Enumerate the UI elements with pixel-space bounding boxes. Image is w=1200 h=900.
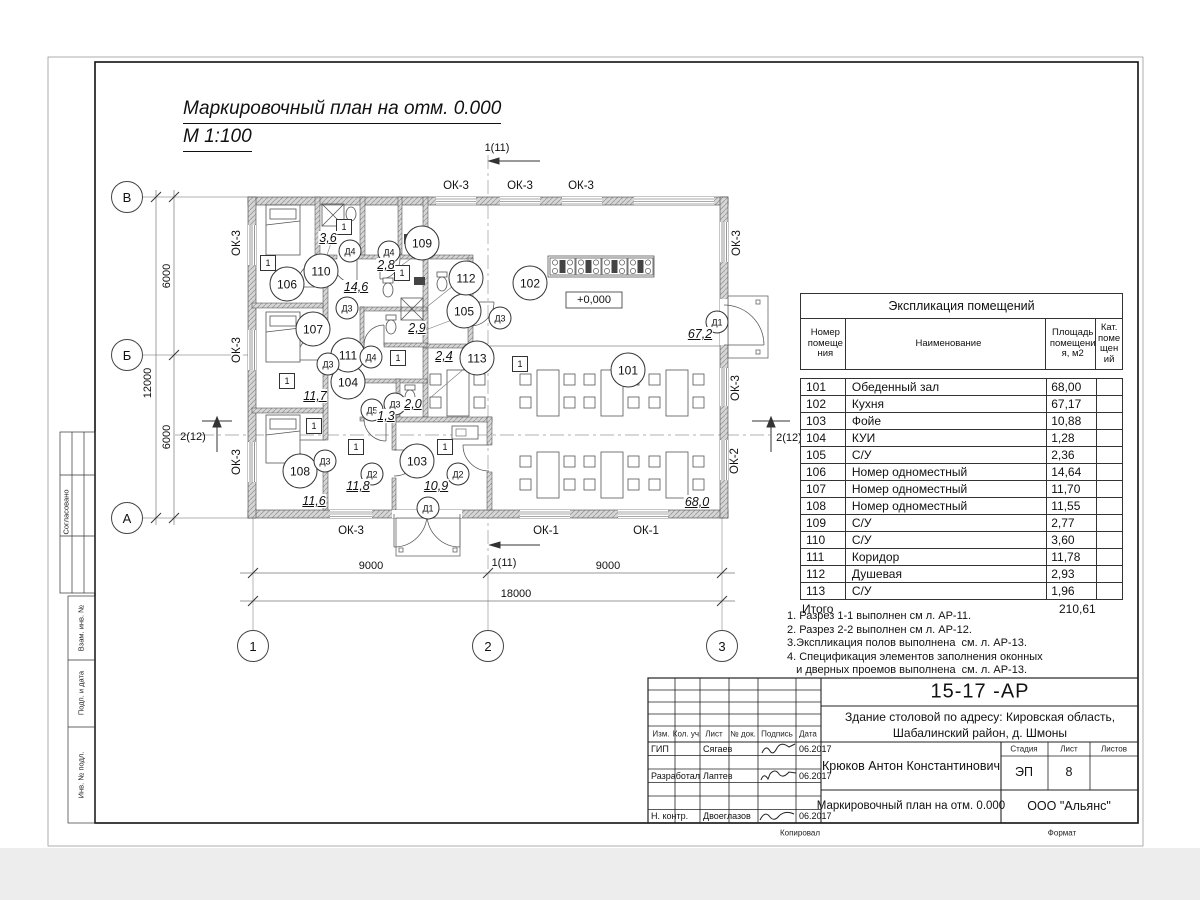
stamp-approve-label: Согласовано <box>62 489 71 534</box>
stage-label: Стадия <box>1010 745 1037 754</box>
stamp-inv-label: Инв. № подл. <box>77 752 86 799</box>
col-header-num: Номер помеще ния <box>801 319 846 369</box>
wall-type-marker: 1 <box>279 373 295 389</box>
room-cat <box>1097 549 1123 565</box>
person-date: 06.2017 <box>799 811 832 821</box>
table-row: 104КУИ1,28 <box>801 430 1123 447</box>
table-row: 101Обеденный зал68,00 <box>801 379 1123 396</box>
section-mark-label: 1(11) <box>485 142 510 154</box>
room-number: 111 <box>801 549 846 565</box>
titleblock-col-header: Лист <box>705 730 722 739</box>
room-name: С/У <box>846 447 1047 463</box>
room-number: 110 <box>801 532 846 548</box>
room-cat <box>1097 413 1123 429</box>
explication-rows: 101Обеденный зал68,00102Кухня67,17103Фой… <box>800 378 1123 600</box>
note-line: 2. Разрез 2-2 выполнен см л. АР-12. <box>787 624 1043 638</box>
room-name: Номер одноместный <box>846 481 1047 497</box>
col-header-name: Наименование <box>846 319 1047 369</box>
company-name: ООО "Альянс" <box>1027 799 1111 813</box>
room-number: 105 <box>801 447 846 463</box>
table-row: 103Фойе10,88 <box>801 413 1123 430</box>
room-marker-101: 101 <box>611 353 646 388</box>
room-name: Кухня <box>846 396 1047 412</box>
room-number: 102 <box>801 396 846 412</box>
note-line: 1. Разрез 1-1 выполнен см л. АР-11. <box>787 610 1043 624</box>
window-label-ОК-3: ОК-3 <box>231 447 243 477</box>
room-number: 104 <box>801 430 846 446</box>
project-line1: Здание столовой по адресу: Кировская обл… <box>845 710 1115 724</box>
window-label-ОК-3: ОК-3 <box>566 180 596 192</box>
window-label-ОК-2: ОК-2 <box>729 446 741 476</box>
wall-type-marker: 1 <box>260 255 276 271</box>
window-label-ОК-3: ОК-3 <box>441 180 471 192</box>
room-area-label: 67,2 <box>687 327 713 341</box>
explication-header: Номер помеще ния Наименование Площадь по… <box>800 319 1123 370</box>
doc-code: 15-17 -АР <box>930 681 1029 704</box>
room-area: 14,64 <box>1047 464 1097 480</box>
room-name: Коридор <box>846 549 1047 565</box>
door-marker-Д3: Д3 <box>317 353 340 376</box>
sheets-label: Листов <box>1101 745 1127 754</box>
room-area-label: 11,7 <box>302 389 327 403</box>
window-label-ОК-3: ОК-3 <box>730 373 742 403</box>
room-area: 67,17 <box>1047 396 1097 412</box>
room-marker-107: 107 <box>296 312 331 347</box>
window-label-ОК-3: ОК-3 <box>505 180 535 192</box>
room-area: 10,88 <box>1047 413 1097 429</box>
room-marker-113: 113 <box>460 341 495 376</box>
door-marker-Д2: Д2 <box>447 463 470 486</box>
axis-bubble-Б: Б <box>111 339 143 371</box>
room-cat <box>1097 379 1123 395</box>
bed-icon <box>266 205 300 463</box>
person-role: Н. контр. <box>651 811 688 821</box>
room-marker-112: 112 <box>449 261 484 296</box>
room-name: Обеденный зал <box>846 379 1047 395</box>
room-area: 11,78 <box>1047 549 1097 565</box>
room-cat <box>1097 396 1123 412</box>
door-marker-Д4: Д4 <box>360 346 383 369</box>
wall-type-marker: 1 <box>437 439 453 455</box>
window-label-ОК-3: ОК-3 <box>231 335 243 365</box>
room-area: 3,60 <box>1047 532 1097 548</box>
person-date: 06.2017 <box>799 744 832 754</box>
room-number: 107 <box>801 481 846 497</box>
dimension-label: 12000 <box>142 368 154 399</box>
room-cat <box>1097 498 1123 514</box>
door-marker-Д4: Д4 <box>339 240 362 263</box>
project-line2: Шабалинский район, д. Шмоны <box>893 726 1067 740</box>
title-line2: М 1:100 <box>183 124 252 152</box>
room-marker-103: 103 <box>400 444 435 479</box>
door-marker-Д3: Д3 <box>489 307 512 330</box>
axis-bubble-2: 2 <box>472 630 504 662</box>
notes-list: 1. Разрез 1-1 выполнен см л. АР-11.2. Ра… <box>787 610 1043 678</box>
door-marker-Д3: Д3 <box>314 450 337 473</box>
room-area-label: 1,3 <box>376 409 395 423</box>
room-area: 1,96 <box>1047 583 1097 599</box>
titleblock-col-header: Дата <box>799 730 817 739</box>
section-mark-label: 1(11) <box>492 557 517 569</box>
title-line1: Маркировочный план на отм. 0.000 <box>183 96 501 124</box>
room-name: С/У <box>846 532 1047 548</box>
room-number: 106 <box>801 464 846 480</box>
room-cat <box>1097 532 1123 548</box>
table-row: 107Номер одноместный11,70 <box>801 481 1123 498</box>
room-cat <box>1097 430 1123 446</box>
room-area-label: 2,8 <box>376 258 395 272</box>
room-area: 11,70 <box>1047 481 1097 497</box>
drawing-sheet: Маркировочный план на отм. 0.000 М 1:100… <box>0 0 1200 900</box>
room-area: 2,36 <box>1047 447 1097 463</box>
total-value: 210,61 <box>1055 602 1109 616</box>
dimension-label: 9000 <box>596 560 620 572</box>
axis-bubble-В: В <box>111 181 143 213</box>
dimension-label: 9000 <box>359 560 383 572</box>
room-marker-105: 105 <box>447 294 482 329</box>
stage-value: ЭП <box>1015 765 1033 779</box>
format-label: Формат <box>1048 829 1076 838</box>
note-line: 4. Спецификация элементов заполнения око… <box>787 651 1043 665</box>
sheet-label: Лист <box>1060 745 1077 754</box>
room-area-label: 2,9 <box>407 321 426 335</box>
room-area: 1,28 <box>1047 430 1097 446</box>
person-role: Разработал <box>651 771 700 781</box>
explication-title: Экспликация помещений <box>800 293 1123 319</box>
room-cat <box>1097 566 1123 582</box>
window-label-ОК-3: ОК-3 <box>231 228 243 258</box>
room-name: Номер одноместный <box>846 498 1047 514</box>
door-marker-Д1: Д1 <box>417 497 440 520</box>
room-number: 108 <box>801 498 846 514</box>
stamp-vzam-label: Взам. инв. № <box>77 605 86 651</box>
room-name: КУИ <box>846 430 1047 446</box>
window-label-ОК-3: ОК-3 <box>336 525 366 537</box>
room-cat <box>1097 447 1123 463</box>
room-name: С/У <box>846 583 1047 599</box>
dimension-label: 6000 <box>161 264 173 288</box>
stamp-podp-label: Подп. и дата <box>77 671 86 715</box>
room-area-label: 11,6 <box>301 494 326 508</box>
wall-type-marker: 1 <box>390 350 406 366</box>
dimension-label: 6000 <box>161 425 173 449</box>
room-area-label: 11,8 <box>345 479 370 493</box>
note-line: 3.Экспликация полов выполнена см. л. АР-… <box>787 637 1043 651</box>
room-number: 112 <box>801 566 846 582</box>
person-role: ГИП <box>651 744 669 754</box>
room-area: 2,77 <box>1047 515 1097 531</box>
room-area-label: 14,6 <box>343 280 369 294</box>
room-marker-108: 108 <box>283 454 318 489</box>
room-cat <box>1097 583 1123 599</box>
room-marker-106: 106 <box>270 267 305 302</box>
person-date: 06.2017 <box>799 771 832 781</box>
bottom-strip <box>0 848 1200 900</box>
table-row: 106Номер одноместный14,64 <box>801 464 1123 481</box>
room-number: 109 <box>801 515 846 531</box>
axis-bubble-А: А <box>111 502 143 534</box>
titleblock-col-header: № док. <box>730 730 756 739</box>
chief-name: Крюков Антон Константинович <box>822 759 1000 773</box>
wall-type-marker: 1 <box>348 439 364 455</box>
room-area-label: 10,9 <box>423 479 449 493</box>
elevation-label: +0,000 <box>577 294 611 306</box>
kitchen-stove-icon <box>548 256 654 277</box>
wall-type-marker: 1 <box>336 219 352 235</box>
room-number: 101 <box>801 379 846 395</box>
room-cat <box>1097 464 1123 480</box>
col-header-cat: Кат. поме щен ий <box>1096 319 1122 369</box>
room-name: Номер одноместный <box>846 464 1047 480</box>
axis-bubble-1: 1 <box>237 630 269 662</box>
room-area: 11,55 <box>1047 498 1097 514</box>
sheet-number: 8 <box>1066 765 1073 779</box>
table-row: 102Кухня67,17 <box>801 396 1123 413</box>
door-marker-Д3: Д3 <box>336 297 359 320</box>
titleblock-col-header: Изм. <box>652 730 669 739</box>
dimension-label: 18000 <box>501 588 532 600</box>
room-name: С/У <box>846 515 1047 531</box>
table-row: 108Номер одноместный11,55 <box>801 498 1123 515</box>
room-number: 103 <box>801 413 846 429</box>
kopiroval-label: Копировал <box>780 829 820 838</box>
titleblock-col-header: Подпись <box>761 730 793 739</box>
room-name: Душевая <box>846 566 1047 582</box>
person-name: Двоеглазов <box>703 811 751 821</box>
room-area-label: 3,6 <box>318 231 337 245</box>
room-area-label: 2,0 <box>403 397 422 411</box>
room-area: 68,00 <box>1047 379 1097 395</box>
table-row: 111Коридор11,78 <box>801 549 1123 566</box>
note-line: и дверных проемов выполнена см. л. АР-13… <box>787 664 1043 678</box>
col-header-area: Площадь помещени я, м2 <box>1046 319 1096 369</box>
room-cat <box>1097 515 1123 531</box>
axis-bubble-3: 3 <box>706 630 738 662</box>
room-area: 2,93 <box>1047 566 1097 582</box>
wall-type-marker: 1 <box>512 356 528 372</box>
window-label-ОК-1: ОК-1 <box>531 525 561 537</box>
table-row: 105С/У2,36 <box>801 447 1123 464</box>
drawing-title: Маркировочный план на отм. 0.000 <box>817 800 1005 812</box>
table-row: 109С/У2,77 <box>801 515 1123 532</box>
table-row: 110С/У3,60 <box>801 532 1123 549</box>
room-cat <box>1097 481 1123 497</box>
section-mark-label: 2(12) <box>776 432 802 444</box>
window-label-ОК-1: ОК-1 <box>631 525 661 537</box>
table-row: 113С/У1,96 <box>801 583 1123 600</box>
room-marker-102: 102 <box>513 266 548 301</box>
room-name: Фойе <box>846 413 1047 429</box>
table-row: 112Душевая2,93 <box>801 566 1123 583</box>
room-area-label: 68,0 <box>684 495 710 509</box>
room-marker-110: 110 <box>304 254 339 289</box>
page-title: Маркировочный план на отм. 0.000 М 1:100 <box>183 96 501 152</box>
room-marker-109: 109 <box>405 226 440 261</box>
room-area-label: 2,4 <box>434 349 453 363</box>
explication-table: Экспликация помещений Номер помеще ния Н… <box>800 293 1123 617</box>
room-number: 113 <box>801 583 846 599</box>
person-name: Сягаев <box>703 744 732 754</box>
wall-type-marker: 1 <box>306 418 322 434</box>
titleblock-col-header: Кол. уч. <box>673 730 701 739</box>
window-label-ОК-3: ОК-3 <box>731 228 743 258</box>
person-name: Лаптев <box>703 771 733 781</box>
section-mark-label: 2(12) <box>180 431 206 443</box>
wall-type-marker: 1 <box>394 265 410 281</box>
